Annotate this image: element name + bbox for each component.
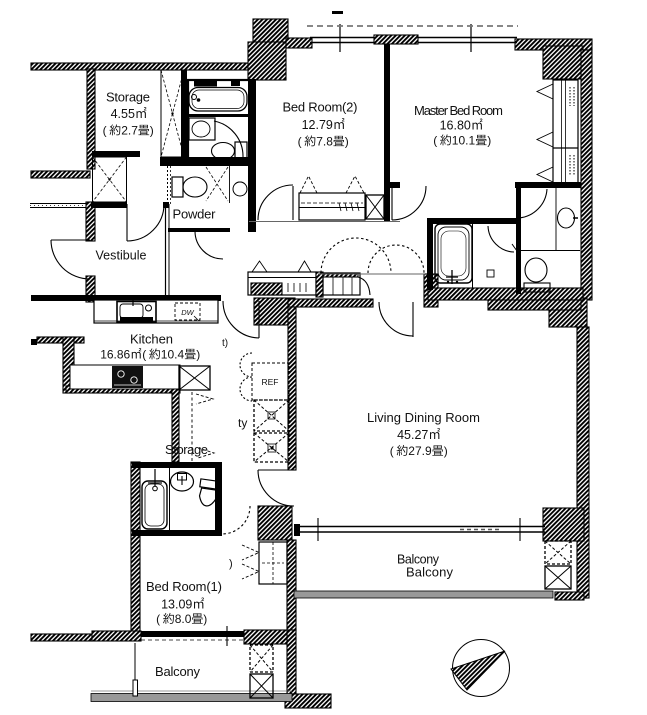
svg-text:): ) [487, 134, 491, 148]
svg-text:t): t) [222, 338, 228, 349]
svg-text:12.79: 12.79 [302, 118, 333, 132]
svg-text:): ) [203, 612, 207, 626]
svg-text:(: ( [390, 444, 394, 458]
svg-text:13.09: 13.09 [161, 598, 192, 612]
svg-text:Powder: Powder [173, 207, 217, 222]
svg-text:ty: ty [238, 416, 247, 430]
svg-text:10.1: 10.1 [452, 134, 476, 148]
svg-text:45.27: 45.27 [397, 428, 428, 442]
svg-text:Living Dining Room: Living Dining Room [367, 410, 480, 425]
svg-text:(: ( [156, 612, 160, 626]
svg-text:Bed Room(2): Bed Room(2) [283, 100, 358, 115]
svg-text:4.55: 4.55 [111, 107, 135, 121]
svg-text:8.0: 8.0 [175, 612, 192, 626]
svg-text:(: ( [142, 348, 146, 362]
svg-text:Bed Room(1): Bed Room(1) [146, 579, 222, 594]
svg-text:Storage: Storage [106, 90, 150, 105]
svg-text:2.7: 2.7 [121, 124, 138, 138]
svg-text:): ) [150, 124, 154, 138]
svg-text:7.8: 7.8 [316, 135, 333, 149]
svg-text:10.4: 10.4 [161, 348, 185, 362]
svg-text:Balcony: Balcony [406, 565, 454, 580]
svg-text:Storage: Storage [165, 442, 208, 457]
svg-text:Vestibule: Vestibule [96, 249, 147, 263]
svg-text:DW: DW [181, 308, 194, 317]
svg-text:16.80: 16.80 [440, 119, 471, 133]
svg-text:(: ( [298, 135, 302, 149]
svg-text:): ) [229, 558, 233, 570]
svg-text:(: ( [433, 134, 437, 148]
svg-text:(: ( [103, 124, 107, 138]
svg-text:27.9: 27.9 [408, 444, 432, 458]
svg-text:Master Bed Room: Master Bed Room [414, 103, 503, 118]
svg-text:): ) [345, 135, 349, 149]
svg-text:REF: REF [262, 377, 279, 387]
svg-text:): ) [196, 348, 200, 362]
svg-text:16.86: 16.86 [100, 348, 130, 362]
svg-text:Balcony: Balcony [155, 664, 201, 679]
svg-text:): ) [444, 444, 448, 458]
svg-text:Kitchen: Kitchen [130, 332, 173, 347]
